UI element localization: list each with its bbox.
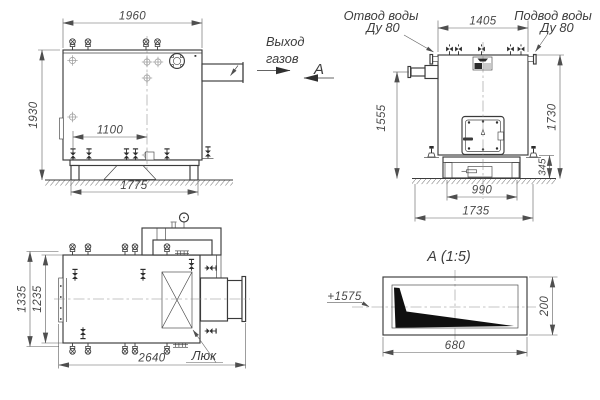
detail-view: А (1:5) +1575 680 200 [327, 249, 558, 357]
valve-icon [446, 44, 453, 55]
dim-text: 1775 [120, 180, 147, 192]
valve-icon [122, 343, 128, 354]
flange-port [170, 54, 185, 69]
dim-detail-height: 200 [529, 277, 558, 335]
dim-text: 990 [472, 185, 493, 197]
dim-text: 1335 [17, 285, 29, 312]
water-inlet-nozzle [528, 55, 536, 65]
valve-icon [455, 44, 462, 55]
dim-text: 680 [445, 340, 466, 352]
leader-line [536, 35, 548, 52]
dim-text: 200 [539, 296, 551, 318]
dim-detail-width: 680 [383, 337, 527, 357]
front-view: 1960 1930 1100 1775 [28, 11, 243, 196]
valve-icon [518, 44, 525, 55]
valve-icon [205, 328, 216, 334]
gas-outlet-pipe [202, 62, 243, 83]
drawing-canvas: 1960 1930 1100 1775 Выход газов А [0, 0, 600, 400]
dim-text: 345 [538, 158, 549, 176]
top-valves-side [446, 44, 524, 55]
technical-drawing: 1960 1930 1100 1775 Выход газов А [0, 0, 600, 400]
valve-icon [507, 44, 514, 55]
nameplate [473, 57, 492, 70]
door-latch [498, 132, 504, 140]
valve-icon [143, 39, 149, 50]
base-frame-side [443, 157, 520, 178]
gas-duct-side [408, 66, 438, 79]
dim-text: 1405 [469, 16, 496, 28]
weld-wedge-profile [394, 288, 514, 328]
gas-outlet-label-line1: Выход [266, 34, 304, 49]
valve-icon [85, 244, 91, 255]
foot-bolt-icon [530, 146, 537, 157]
ground-side [412, 179, 556, 185]
valve-icon [205, 147, 211, 158]
elevation-text: +1575 [327, 291, 362, 303]
dim-front-height: 1930 [28, 50, 60, 180]
dim-text: 1100 [97, 125, 124, 137]
side-view: Отвод воды Ду 80 Подвод воды Ду 80 1405 … [344, 8, 593, 222]
hinge-strip [60, 118, 64, 139]
foot-bolt-icon [428, 146, 435, 157]
valve-icon [478, 44, 485, 55]
elevation-mark: +1575 [327, 291, 369, 307]
water-inlet-label-line2: Ду 80 [538, 20, 574, 35]
detail-title: А (1:5) [426, 249, 471, 265]
dim-text: 1960 [119, 11, 146, 23]
valve-icon [205, 265, 216, 271]
valve-icon [70, 244, 76, 255]
valve-icon [85, 39, 91, 50]
dim-text: 1555 [376, 104, 388, 131]
dim-text: 1730 [547, 103, 559, 130]
bottom-valves-plan [70, 343, 188, 354]
dim-text: 1235 [32, 285, 44, 312]
ash-door [468, 167, 492, 178]
valve-icon [85, 343, 91, 354]
water-outlet-nozzle [430, 55, 438, 65]
valve-icon [70, 343, 76, 354]
water-outlet-label-line2: Ду 80 [364, 20, 400, 35]
door-handle [463, 138, 473, 141]
valve-icon [155, 39, 161, 50]
gas-outlet-annotation: Выход газов А [257, 34, 334, 78]
section-letter: А [313, 61, 324, 78]
plan-view: 1335 1235 2640 Люк [17, 213, 251, 369]
valve-icon [70, 39, 76, 50]
dim-side-base-height: 345 [538, 156, 555, 179]
dim-text: 1735 [462, 206, 489, 218]
leader-line [404, 35, 434, 52]
gas-outlet-label-line2: газов [266, 51, 299, 66]
dim-side-pipe-height: 1555 [376, 72, 409, 179]
valve-icon [132, 343, 138, 354]
hatch-label: Люк [191, 348, 217, 363]
dim-text: 2640 [137, 353, 165, 365]
valve-icon [122, 244, 128, 255]
dim-front-width: 1960 [63, 11, 202, 49]
dim-text: 1930 [28, 101, 40, 128]
valve-icon [132, 244, 138, 255]
top-valves-front [70, 39, 161, 50]
